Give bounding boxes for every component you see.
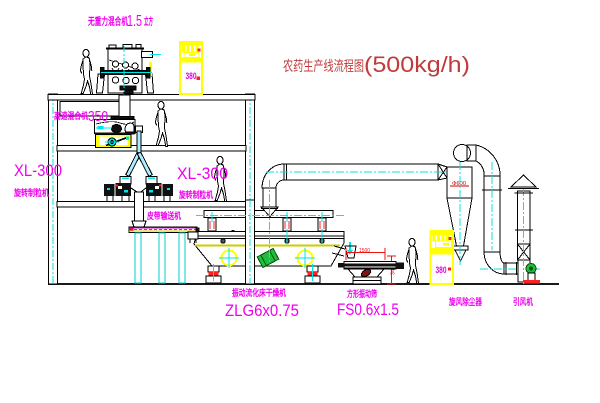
svg-text:旋转制粒机: 旋转制粒机 [13, 187, 49, 198]
svg-text:1500: 1500 [359, 248, 370, 254]
svg-text:旋转制粒机: 旋转制粒机 [178, 189, 213, 200]
svg-text:皮带输送机: 皮带输送机 [146, 210, 181, 221]
svg-text:1.5: 1.5 [127, 13, 142, 30]
svg-text:380: 380 [436, 265, 447, 275]
svg-text:无重力混合机: 无重力混合机 [87, 15, 128, 28]
svg-text:380: 380 [186, 71, 197, 81]
svg-text:FS0.6x1.5: FS0.6x1.5 [337, 300, 399, 319]
svg-text:ZLG6x0.75: ZLG6x0.75 [225, 301, 299, 320]
svg-text:农药生产线流程图: 农药生产线流程图 [283, 58, 364, 74]
svg-text:旋风除尘器: 旋风除尘器 [448, 296, 482, 307]
svg-text:立方: 立方 [144, 15, 153, 28]
svg-text:高速混合机: 高速混合机 [54, 110, 88, 121]
svg-text:(500kg/h): (500kg/h) [364, 52, 470, 77]
svg-text:XL-300: XL-300 [14, 161, 62, 180]
svg-text:引风机: 引风机 [513, 296, 533, 307]
svg-text:350: 350 [88, 108, 108, 125]
svg-text:XL-300: XL-300 [177, 164, 228, 183]
svg-text:方形振动筛: 方形振动筛 [347, 288, 377, 299]
svg-text:振动流化床干燥机: 振动流化床干燥机 [232, 287, 286, 298]
svg-text:Φ600: Φ600 [452, 181, 466, 187]
